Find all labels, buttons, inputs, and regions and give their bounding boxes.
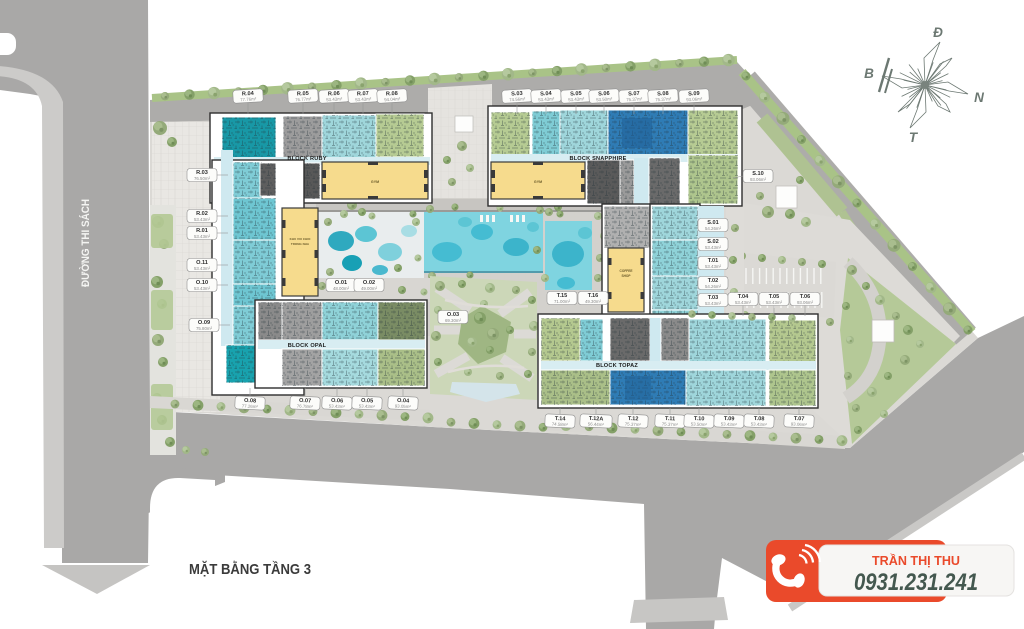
svg-text:71.00m²: 71.00m²	[554, 299, 571, 304]
svg-text:0931.231.241: 0931.231.241	[854, 569, 978, 596]
svg-text:53.43m²: 53.43m²	[538, 96, 555, 102]
svg-text:SHOP: SHOP	[621, 274, 631, 278]
svg-text:BLOCK RUBY: BLOCK RUBY	[287, 156, 326, 162]
svg-text:TRONG NHA: TRONG NHA	[291, 242, 310, 246]
svg-text:GYM: GYM	[534, 180, 542, 184]
svg-text:N: N	[974, 90, 984, 105]
svg-text:76.77m²: 76.77m²	[295, 96, 312, 102]
svg-text:53.50m²: 53.50m²	[596, 96, 613, 102]
svg-text:BLOCK SNAPPHIRE: BLOCK SNAPPHIRE	[569, 156, 626, 162]
svg-text:75.80m²: 75.80m²	[196, 326, 213, 331]
svg-text:53.43m²: 53.43m²	[194, 286, 211, 291]
svg-text:53.43m²: 53.43m²	[735, 300, 752, 305]
svg-text:GYM: GYM	[371, 180, 379, 184]
svg-text:48.00m²: 48.00m²	[333, 286, 350, 291]
svg-text:53.43m²: 53.43m²	[326, 96, 343, 102]
svg-text:TRẦN THỊ THU: TRẦN THỊ THU	[872, 553, 960, 568]
svg-text:53.43m²: 53.43m²	[766, 300, 783, 305]
svg-text:53.43m²: 53.43m²	[705, 245, 722, 250]
svg-text:93.06m²: 93.06m²	[750, 177, 767, 182]
svg-text:53.43m²: 53.43m²	[194, 217, 211, 222]
svg-text:53.43m²: 53.43m²	[359, 403, 376, 409]
svg-text:54.26m²: 54.26m²	[705, 226, 722, 231]
svg-text:53.43m²: 53.43m²	[355, 96, 372, 102]
svg-text:77.26m²: 77.26m²	[242, 403, 259, 409]
svg-text:Đ: Đ	[933, 25, 943, 40]
svg-text:ĐƯỜNG THI SÁCH: ĐƯỜNG THI SÁCH	[79, 199, 92, 287]
svg-text:B: B	[864, 66, 874, 81]
svg-text:53.43m²: 53.43m²	[568, 96, 585, 102]
svg-text:93.06m²: 93.06m²	[686, 96, 703, 102]
svg-text:76.78m²: 76.78m²	[297, 403, 314, 409]
svg-text:75.37m²: 75.37m²	[662, 421, 679, 427]
svg-text:COFFEE: COFFEE	[620, 269, 633, 273]
svg-text:53.43m²: 53.43m²	[721, 421, 738, 427]
svg-text:93.06m²: 93.06m²	[791, 421, 808, 427]
svg-text:MẶT BẰNG TẦNG 3: MẶT BẰNG TẦNG 3	[189, 560, 311, 578]
svg-text:53.43m²: 53.43m²	[705, 264, 722, 269]
svg-text:BLOCK OPAL: BLOCK OPAL	[288, 343, 327, 349]
svg-text:53.43m²: 53.43m²	[194, 266, 211, 271]
svg-text:74.56m²: 74.56m²	[509, 96, 526, 102]
svg-text:69.30m²: 69.30m²	[445, 318, 462, 323]
svg-text:53.50m²: 53.50m²	[691, 421, 708, 427]
svg-text:56.44m²: 56.44m²	[588, 421, 605, 427]
svg-text:94.04m²: 94.04m²	[384, 96, 401, 102]
svg-text:49.30m²: 49.30m²	[585, 299, 602, 304]
svg-text:93.05m²: 93.05m²	[395, 403, 412, 409]
svg-text:49.00m²: 49.00m²	[361, 286, 378, 291]
svg-text:93.06m²: 93.06m²	[797, 300, 814, 305]
svg-text:54.26m²: 54.26m²	[705, 284, 722, 289]
svg-text:76.50m²: 76.50m²	[194, 176, 211, 181]
svg-text:KHU VUI CHOI: KHU VUI CHOI	[290, 237, 311, 241]
svg-text:53.43m²: 53.43m²	[194, 234, 211, 239]
svg-text:75.37m²: 75.37m²	[655, 96, 672, 102]
svg-text:53.43m²: 53.43m²	[329, 403, 346, 409]
svg-text:75.37m²: 75.37m²	[626, 96, 643, 102]
svg-text:53.43m²: 53.43m²	[751, 421, 768, 427]
svg-text:74.58m²: 74.58m²	[552, 421, 569, 427]
svg-text:53.43m²: 53.43m²	[705, 301, 722, 306]
svg-text:77.76m²: 77.76m²	[240, 96, 257, 102]
svg-text:BLOCK TOPAZ: BLOCK TOPAZ	[596, 363, 638, 369]
svg-text:75.37m²: 75.37m²	[625, 421, 642, 427]
